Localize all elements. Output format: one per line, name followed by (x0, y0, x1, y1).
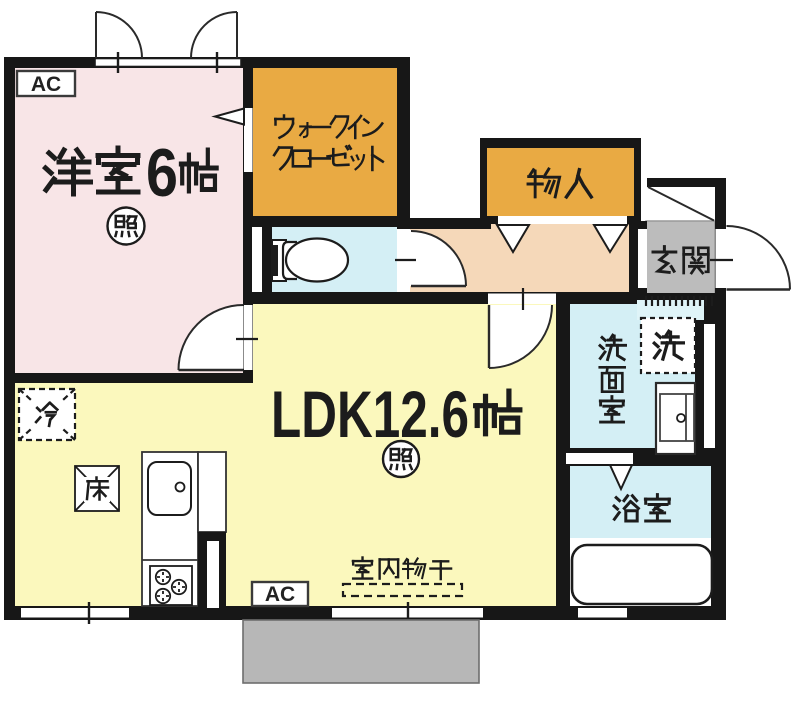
svg-text:AC: AC (31, 73, 61, 96)
svg-text:LDK12.6: LDK12.6 (271, 377, 469, 451)
svg-text:6: 6 (146, 135, 178, 211)
svg-text:AC: AC (265, 583, 295, 606)
